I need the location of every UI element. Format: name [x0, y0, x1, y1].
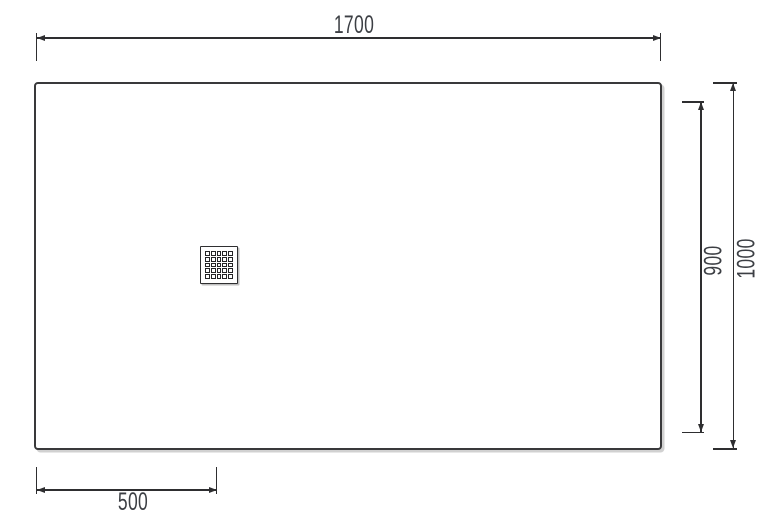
dim-drain-offset-arrow-right [209, 487, 217, 493]
drain-hole [222, 263, 227, 268]
drain-hole [228, 251, 233, 256]
drain-hole [211, 268, 216, 273]
drain-hole [222, 251, 227, 256]
drain-hole [217, 251, 222, 256]
drain-hole [205, 257, 210, 262]
drain-hole [205, 268, 210, 273]
technical-drawing-canvas: 1700 900 1000 500 [0, 0, 767, 520]
dim-top-width-label: 1700 [312, 13, 396, 38]
dim-inner-height-tick-bottom [682, 432, 704, 434]
dim-top-width-arrow-right [653, 35, 661, 41]
dim-total-height-tick-bottom [713, 448, 737, 450]
drain-hole [222, 257, 227, 262]
dim-top-width-arrow-left [37, 35, 45, 41]
dim-inner-height-arrow-bottom [698, 424, 704, 432]
drain-hole [222, 268, 227, 273]
dim-inner-height-label: 900 [702, 219, 727, 303]
drain-hole [205, 251, 210, 256]
drain-hole [205, 263, 210, 268]
drain-grate-holes [205, 251, 233, 279]
drain-hole [205, 274, 210, 279]
drain-hole [228, 263, 233, 268]
drain-hole [211, 251, 216, 256]
drain-hole [217, 257, 222, 262]
drain-hole [211, 263, 216, 268]
drain-hole [228, 268, 233, 273]
dim-total-height-label: 1000 [735, 217, 760, 301]
drain-hole [222, 274, 227, 279]
drain-hole [228, 274, 233, 279]
drain-hole [228, 257, 233, 262]
drain-hole [211, 274, 216, 279]
drain-hole [217, 274, 222, 279]
dim-total-height-arrow-bottom [730, 440, 736, 448]
dim-total-height-arrow-top [730, 83, 736, 91]
drain-grate-icon [200, 246, 238, 284]
dim-drain-offset-label: 500 [91, 490, 175, 515]
dim-inner-height-arrow-top [698, 102, 704, 110]
dim-drain-offset-arrow-left [37, 487, 45, 493]
drain-hole [217, 268, 222, 273]
shower-tray-outline [34, 82, 662, 450]
drain-hole [217, 263, 222, 268]
drain-hole [211, 257, 216, 262]
